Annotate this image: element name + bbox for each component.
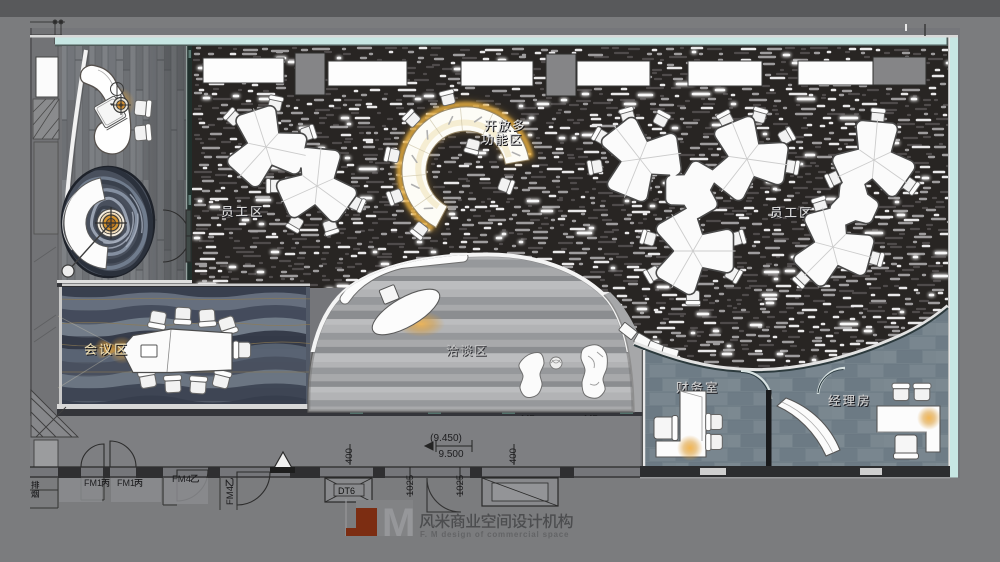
svg-text:FM1: FM1	[117, 478, 135, 488]
svg-text:1025: 1025	[455, 475, 466, 496]
svg-text:1025: 1025	[405, 475, 416, 496]
svg-text:F. M design of commercial spac: F. M design of commercial space	[420, 530, 569, 539]
svg-text:FM4: FM4	[225, 486, 236, 505]
svg-text:(9.450): (9.450)	[430, 433, 462, 444]
svg-text:400: 400	[508, 448, 519, 464]
svg-text:M: M	[382, 501, 415, 545]
svg-text:DT6: DT6	[338, 486, 355, 496]
svg-text:9.500: 9.500	[438, 449, 463, 460]
svg-text:400: 400	[344, 448, 355, 464]
svg-text:FM1: FM1	[84, 478, 102, 488]
svg-text:FM4: FM4	[172, 474, 191, 485]
